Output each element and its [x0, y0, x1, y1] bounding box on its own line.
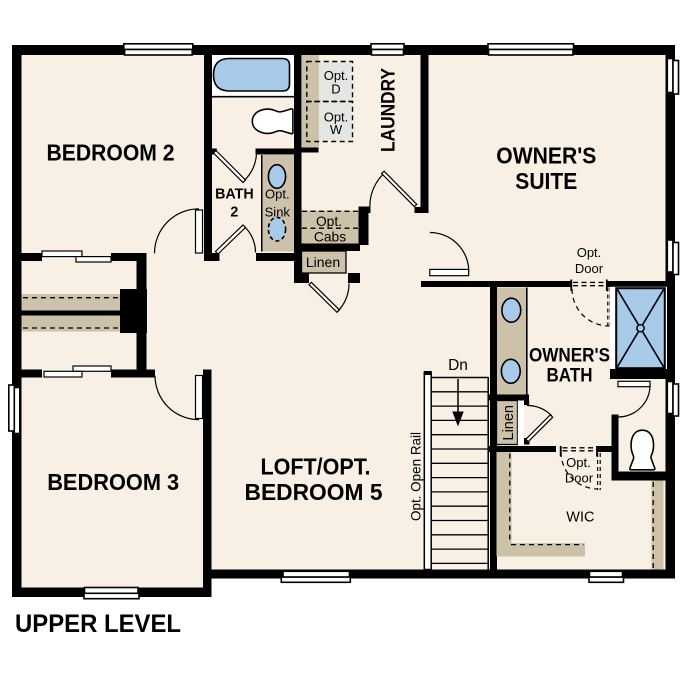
svg-text:BEDROOM 3: BEDROOM 3	[47, 469, 179, 495]
svg-text:D: D	[331, 82, 340, 97]
svg-text:Linen: Linen	[501, 405, 517, 440]
svg-text:Cabs: Cabs	[314, 230, 346, 245]
svg-text:Sink: Sink	[265, 205, 291, 220]
svg-text:Opt.: Opt.	[577, 245, 602, 260]
svg-text:Door: Door	[565, 471, 594, 486]
svg-text:Opt. Open Rail: Opt. Open Rail	[409, 432, 424, 521]
svg-text:BEDROOM 2: BEDROOM 2	[47, 139, 175, 165]
svg-text:Opt.: Opt.	[316, 214, 342, 229]
svg-text:BATH: BATH	[215, 187, 254, 203]
svg-text:2: 2	[230, 205, 238, 221]
svg-text:BEDROOM 5: BEDROOM 5	[245, 479, 383, 505]
svg-text:LOFT/OPT.: LOFT/OPT.	[261, 454, 371, 480]
svg-text:UPPER LEVEL: UPPER LEVEL	[15, 610, 181, 638]
svg-text:Linen: Linen	[306, 254, 340, 270]
svg-text:Dn: Dn	[448, 357, 468, 374]
svg-text:Opt.: Opt.	[566, 455, 591, 470]
svg-text:WIC: WIC	[566, 510, 594, 526]
svg-text:OWNER'S: OWNER'S	[529, 346, 610, 367]
svg-text:Opt.: Opt.	[265, 187, 290, 202]
svg-text:W: W	[330, 122, 343, 137]
svg-text:Door: Door	[575, 261, 604, 276]
svg-text:OWNER'S: OWNER'S	[496, 142, 596, 168]
svg-text:SUITE: SUITE	[515, 168, 577, 194]
svg-text:LAUNDRY: LAUNDRY	[378, 68, 400, 152]
svg-text:BATH: BATH	[547, 365, 593, 386]
